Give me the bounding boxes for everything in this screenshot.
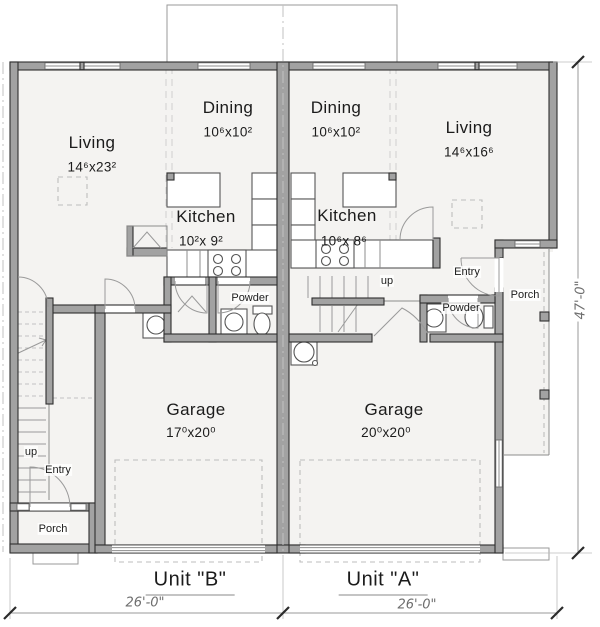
stove-icon-b [208,250,246,278]
room-label-garage-a: Garage [364,400,423,420]
stair-up-label-b: up [24,446,38,458]
room-label-kitchen-b: Kitchen [176,207,236,227]
room-dims-garage-b: 17⁰x20⁰ [166,425,216,441]
room-label-garage-b: Garage [166,400,225,420]
dimension-width-unit-b: 26'-0" [123,596,166,611]
stair-up-label-a: up [380,275,394,287]
room-dims-kitchen-a: 10⁶x 8⁶ [321,234,367,249]
powder-fixtures-b [221,306,272,335]
island-b [167,173,220,207]
floor-plan-canvas: Living 14⁶x23² Dining 10⁶x10² Kitchen 10… [0,0,600,627]
garage-door-opening-b [112,545,265,552]
fridge-icon-a [291,173,315,199]
room-dims-living-a: 14⁶x16⁶ [444,145,494,160]
room-label-living-b: Living [69,133,116,153]
room-label-powder-b: Powder [230,292,269,304]
room-label-entry-a: Entry [453,266,481,278]
unit-a-title: Unit "A" [339,569,428,596]
unit-b-title: Unit "B" [146,569,235,596]
room-dims-kitchen-b: 10²x 9² [179,234,223,249]
sink-icon-b [221,309,247,335]
porch-post [540,312,549,321]
room-dims-dining-a: 10⁶x10² [312,125,361,140]
room-label-entry-b: Entry [44,464,72,476]
room-label-kitchen-a: Kitchen [317,206,377,226]
water-heater-icon [291,339,318,366]
dimension-height-overall: 47'-0" [574,278,589,321]
room-label-powder-a: Powder [441,302,480,314]
room-dims-living-b: 14⁶x23² [68,160,117,175]
room-dims-dining-b: 10⁶x10² [204,125,253,140]
room-label-dining-b: Dining [203,98,254,118]
room-label-porch-b: Porch [38,523,69,535]
room-label-dining-a: Dining [311,98,362,118]
island-a [343,173,396,207]
fridge-icon-b [252,173,277,199]
deck-outline [167,5,397,62]
garage-door-opening-a [300,545,480,552]
dimension-width-unit-a: 26'-0" [395,598,438,613]
room-dims-garage-a: 20⁰x20⁰ [361,425,411,441]
room-label-living-a: Living [446,118,493,138]
floor-plan-drawing [0,0,600,627]
room-label-porch-a: Porch [510,289,541,301]
porch-post [540,390,549,399]
